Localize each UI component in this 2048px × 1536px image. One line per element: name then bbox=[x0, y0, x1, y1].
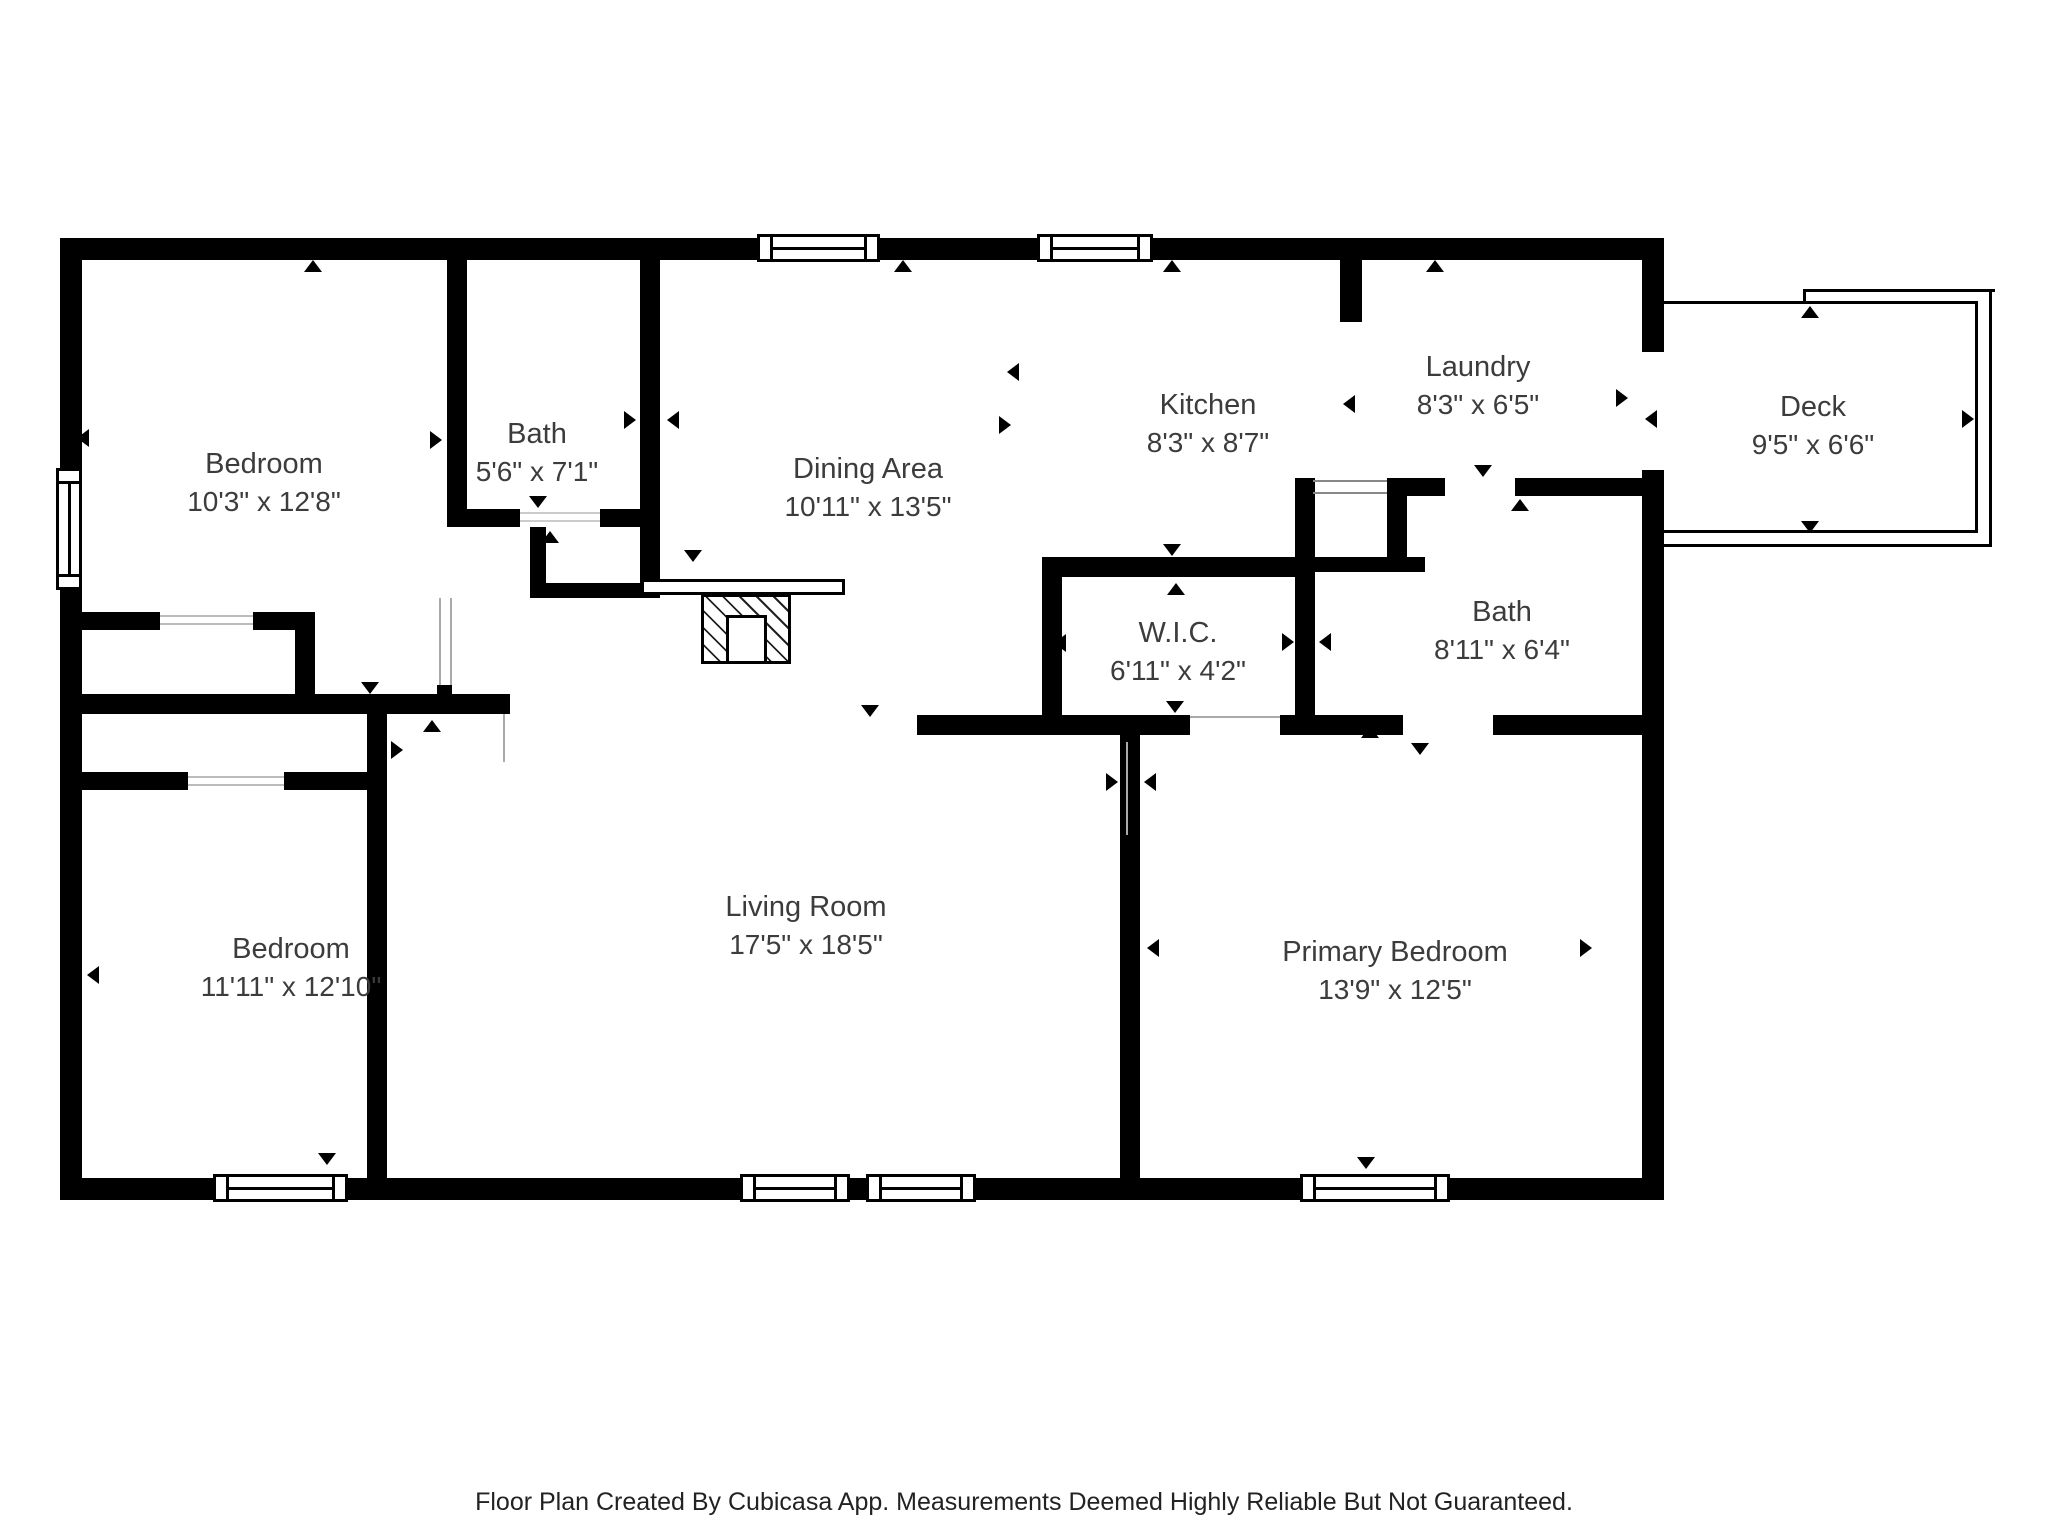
wall bbox=[60, 772, 188, 790]
door-arrow-icon bbox=[1361, 723, 1379, 738]
wall bbox=[284, 772, 387, 790]
door-arrow-icon bbox=[430, 431, 445, 449]
room-label-primary-bedroom: Primary Bedroom 13'9" x 12'5" bbox=[1282, 935, 1508, 1010]
door-arrow-icon bbox=[1141, 773, 1156, 791]
room-dimensions: 8'11" x 6'4" bbox=[1434, 630, 1570, 670]
room-dimensions: 17'5" x 18'5" bbox=[725, 925, 886, 965]
wall bbox=[917, 715, 1190, 735]
room-name: Dining Area bbox=[784, 452, 951, 487]
window-pane-line bbox=[1434, 1177, 1437, 1199]
door-arrow-icon bbox=[1642, 410, 1657, 428]
wall bbox=[600, 509, 660, 527]
wall bbox=[640, 260, 660, 598]
room-dimensions: 8'3" x 6'5" bbox=[1417, 385, 1539, 425]
wall bbox=[447, 509, 520, 527]
wall bbox=[1042, 557, 1315, 577]
window-pane-line bbox=[882, 1187, 960, 1190]
door-arrow-icon bbox=[624, 411, 639, 429]
wall bbox=[1295, 478, 1315, 735]
room-label-bath-1: Bath 5'6" x 7'1" bbox=[476, 417, 598, 492]
door-arrow-icon bbox=[664, 411, 679, 429]
window bbox=[757, 234, 880, 262]
window bbox=[213, 1174, 348, 1202]
deck-railing bbox=[1989, 289, 1992, 547]
room-name: Bedroom bbox=[187, 447, 341, 482]
door-arrow-icon bbox=[1163, 257, 1181, 272]
window bbox=[1300, 1174, 1450, 1202]
window-pane-line bbox=[834, 1177, 837, 1199]
wall bbox=[1120, 728, 1140, 1178]
door-arrow-icon bbox=[1426, 257, 1444, 272]
window-pane-line bbox=[1316, 1187, 1434, 1190]
door-arrow-icon bbox=[529, 496, 547, 511]
door-arrow-icon bbox=[1167, 580, 1185, 595]
deck-railing bbox=[1643, 544, 1992, 547]
door-line bbox=[520, 512, 600, 514]
wall bbox=[60, 238, 82, 1200]
wall bbox=[1387, 478, 1445, 496]
room-dimensions: 8'3" x 8'7" bbox=[1147, 423, 1269, 463]
door-arrow-icon bbox=[1474, 465, 1492, 480]
door-line bbox=[188, 776, 284, 778]
window bbox=[866, 1174, 976, 1202]
wall bbox=[1295, 557, 1425, 572]
door-line bbox=[1313, 480, 1387, 482]
door-arrow-icon bbox=[1801, 303, 1819, 318]
room-dimensions: 10'11" x 13'5" bbox=[784, 487, 951, 527]
window-pane-line bbox=[1053, 247, 1137, 250]
room-label-bedroom-2: Bedroom 11'11" x 12'10" bbox=[201, 932, 382, 1007]
door-arrow-icon bbox=[1316, 633, 1331, 651]
wall bbox=[60, 694, 510, 714]
door-arrow-icon bbox=[318, 1153, 336, 1168]
wall bbox=[1515, 478, 1642, 496]
room-name: Living Room bbox=[725, 890, 886, 925]
room-label-bath-2: Bath 8'11" x 6'4" bbox=[1434, 595, 1570, 670]
door-arrow-icon bbox=[1004, 363, 1019, 381]
disclaimer-text: Floor Plan Created By Cubicasa App. Meas… bbox=[475, 1488, 1573, 1517]
room-name: Primary Bedroom bbox=[1282, 935, 1508, 970]
floor-plan-page: Bedroom 10'3" x 12'8" Bath 5'6" x 7'1" D… bbox=[0, 0, 2048, 1536]
door-arrow-icon bbox=[1357, 1157, 1375, 1172]
door-arrow-icon bbox=[1616, 389, 1631, 407]
fireplace-mantel bbox=[641, 579, 845, 595]
door-arrow-icon bbox=[1511, 496, 1529, 511]
door-arrow-icon bbox=[684, 550, 702, 565]
deck-railing bbox=[1803, 289, 1995, 292]
room-label-laundry: Laundry 8'3" x 6'5" bbox=[1417, 350, 1539, 425]
door-arrow-icon bbox=[1580, 939, 1595, 957]
door-line bbox=[160, 623, 253, 625]
room-label-deck: Deck 9'5" x 6'6" bbox=[1752, 390, 1874, 465]
wall bbox=[447, 260, 467, 527]
room-dimensions: 6'11" x 4'2" bbox=[1110, 651, 1246, 691]
window-pane-line bbox=[1137, 237, 1140, 259]
door-line bbox=[450, 598, 452, 685]
door-line bbox=[439, 598, 441, 685]
door-arrow-icon bbox=[361, 682, 379, 697]
room-name: Deck bbox=[1752, 390, 1874, 425]
door-arrow-icon bbox=[1166, 701, 1184, 716]
room-label-kitchen: Kitchen 8'3" x 8'7" bbox=[1147, 388, 1269, 463]
room-name: Bath bbox=[476, 417, 598, 452]
window-pane-line bbox=[773, 247, 864, 250]
room-name: Kitchen bbox=[1147, 388, 1269, 423]
room-dimensions: 5'6" x 7'1" bbox=[476, 452, 598, 492]
door-arrow-icon bbox=[999, 416, 1014, 434]
wall bbox=[253, 612, 315, 630]
door-arrow-icon bbox=[861, 705, 879, 720]
door-line bbox=[1126, 742, 1128, 835]
door-line bbox=[1313, 492, 1387, 494]
room-label-dining-area: Dining Area 10'11" x 13'5" bbox=[784, 452, 951, 527]
window bbox=[56, 468, 82, 590]
window-pane-line bbox=[59, 574, 79, 577]
door-line bbox=[188, 784, 284, 786]
wall bbox=[1340, 260, 1362, 322]
door-arrow-icon bbox=[84, 966, 99, 984]
door-arrow-icon bbox=[1282, 633, 1297, 651]
room-name: Bath bbox=[1434, 595, 1570, 630]
window-pane-line bbox=[68, 484, 71, 574]
room-label-bedroom-1: Bedroom 10'3" x 12'8" bbox=[187, 447, 341, 522]
door-line bbox=[160, 615, 253, 617]
door-arrow-icon bbox=[894, 257, 912, 272]
door-line bbox=[503, 714, 505, 762]
deck-railing bbox=[1803, 289, 1806, 304]
room-label-living-room: Living Room 17'5" x 18'5" bbox=[725, 890, 886, 965]
door-arrow-icon bbox=[1411, 743, 1429, 758]
wall bbox=[1280, 715, 1403, 735]
window-pane-line bbox=[229, 1187, 332, 1190]
door-arrow-icon bbox=[1801, 521, 1819, 536]
window bbox=[1037, 234, 1153, 262]
room-dimensions: 10'3" x 12'8" bbox=[187, 482, 341, 522]
room-dimensions: 11'11" x 12'10" bbox=[201, 967, 382, 1007]
window-pane-line bbox=[864, 237, 867, 259]
door-arrow-icon bbox=[1051, 634, 1066, 652]
window-pane-line bbox=[332, 1177, 335, 1199]
room-label-wic: W.I.C. 6'11" x 4'2" bbox=[1110, 616, 1246, 691]
door-arrow-icon bbox=[541, 528, 559, 543]
window-pane-line bbox=[756, 1187, 834, 1190]
door-line bbox=[1190, 716, 1280, 718]
room-name: Bedroom bbox=[201, 932, 382, 967]
window bbox=[740, 1174, 850, 1202]
room-dimensions: 13'9" x 12'5" bbox=[1282, 970, 1508, 1010]
door-arrow-icon bbox=[1962, 410, 1977, 428]
door-arrow-icon bbox=[1163, 544, 1181, 559]
room-name: W.I.C. bbox=[1110, 616, 1246, 651]
window-pane-line bbox=[960, 1177, 963, 1199]
wall bbox=[60, 612, 160, 630]
door-arrow-icon bbox=[423, 717, 441, 732]
door-arrow-icon bbox=[1144, 939, 1159, 957]
door-arrow-icon bbox=[391, 741, 406, 759]
door-arrow-icon bbox=[304, 257, 322, 272]
door-arrow-icon bbox=[1340, 395, 1355, 413]
door-arrow-icon bbox=[74, 429, 89, 447]
room-name: Laundry bbox=[1417, 350, 1539, 385]
wall bbox=[1493, 715, 1664, 735]
door-line bbox=[520, 520, 600, 522]
door-arrow-icon bbox=[1106, 773, 1121, 791]
room-dimensions: 9'5" x 6'6" bbox=[1752, 425, 1874, 465]
fireplace-firebox bbox=[726, 615, 767, 664]
